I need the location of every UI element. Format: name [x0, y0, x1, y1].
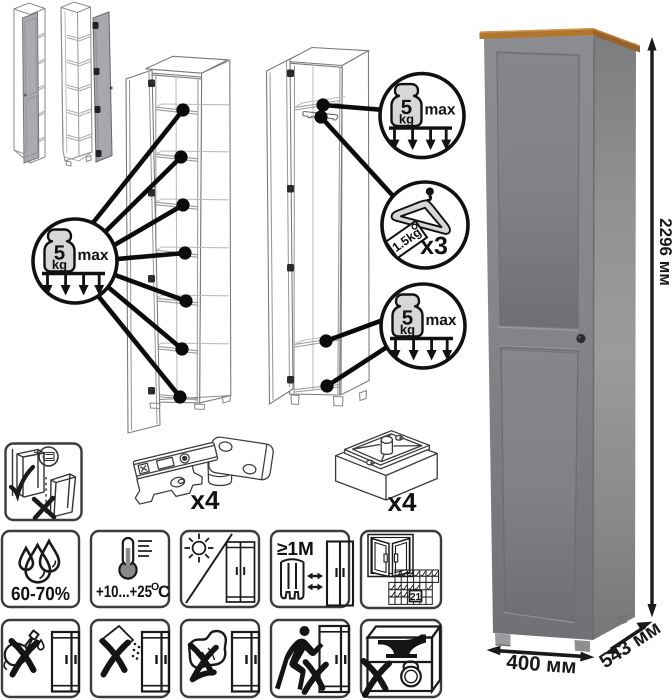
svg-text:60-70%: 60-70% — [11, 584, 70, 605]
svg-text:400 мм: 400 мм — [506, 651, 578, 679]
svg-text:+10...+25: +10...+25 — [96, 583, 152, 601]
svg-text:x4: x4 — [191, 485, 220, 515]
svg-text:≥1М: ≥1М — [277, 539, 314, 560]
svg-text:2296 мм: 2296 мм — [656, 218, 672, 286]
svg-text:21: 21 — [410, 592, 422, 603]
svg-text:C: C — [158, 583, 170, 601]
svg-text:x3: x3 — [420, 232, 448, 260]
svg-text:x4: x4 — [388, 487, 417, 517]
